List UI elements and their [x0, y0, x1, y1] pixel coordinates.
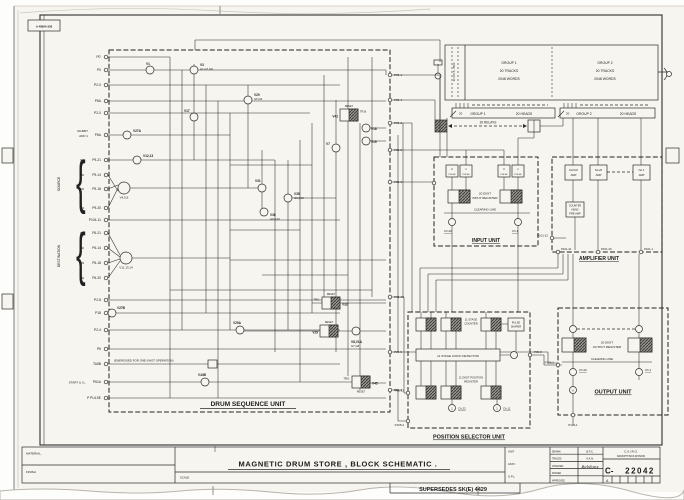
counter-box-cell [491, 318, 501, 331]
output-top-left-circle [570, 326, 577, 333]
selector-right-terminal-label: P05-8 [534, 350, 542, 354]
terminal-label: P6-18 [92, 261, 101, 265]
oneshot-box [208, 360, 217, 368]
ff-box-cell [361, 376, 370, 388]
org-line1: C.S.I.R.O. [624, 450, 638, 454]
terminal-circle [388, 180, 392, 184]
oneshot-note: (ENERGISED FOR ONE-SHOT OPERATION) [114, 359, 174, 363]
terminal-circle [104, 55, 108, 59]
schematic-sheet: A 4898A 936 30 R.P.S. 7860 GROUP 1 20 TR… [0, 0, 684, 500]
dsu-title: DRUM SEQUENCE UNIT [211, 401, 286, 408]
terminal-circle [104, 68, 108, 72]
m-tag: M2 [80, 246, 84, 250]
valve-label: V27B [117, 306, 126, 310]
input-register-label-2: INPUT REGISTER [472, 196, 498, 200]
valve-node [123, 131, 131, 139]
destination-label: DESTINATION [57, 244, 61, 267]
terminal-circle [104, 206, 108, 210]
terminal-label: P101-21 [561, 247, 572, 251]
titleblock-row-value: B.F.C. [586, 450, 594, 454]
terminal-circle [388, 295, 392, 299]
m-tag: M1 [80, 158, 84, 162]
terminal-circle [104, 231, 108, 235]
terminal-label: P9-20 [92, 206, 101, 210]
terminal-circle [104, 158, 108, 162]
inhibit-label-1: INHIBIT [77, 129, 88, 133]
terminal-label: P0' [96, 55, 101, 59]
coinc-detector-label: 11 STAGE COINC DETECTOR [437, 354, 480, 358]
terminal-circle [104, 99, 108, 103]
valve-node [201, 378, 209, 386]
reset-label: RESET [327, 293, 336, 296]
valve-label: V33 [342, 303, 348, 307]
input-register-right-cell [511, 190, 522, 203]
terminal-label: P6-21 [92, 231, 101, 235]
pulse-box-word: PULSE [462, 174, 470, 176]
heads1-group: GROUP 1 [470, 112, 485, 116]
ff-box-cell [349, 109, 358, 121]
amp-box [565, 165, 582, 180]
titleblock-row-label: TRACED [552, 458, 562, 461]
terminal-label: P104-11 [89, 218, 101, 222]
valve-sub: G3,G10 [294, 196, 304, 200]
m-tag: M4 [80, 206, 84, 210]
output-amp-letter: A [572, 388, 574, 392]
terminal-label: P2-8 [94, 298, 101, 302]
terminal-circle [104, 298, 108, 302]
valve-node [362, 137, 370, 145]
amp-box-line: No.20 [595, 168, 603, 172]
terminal-label: P2-0 [94, 83, 101, 87]
input-register-label-1: 20 DIGIT [479, 192, 491, 196]
terminal-label: P9-18 [92, 187, 101, 191]
binder-tab [2, 148, 13, 163]
finish-label: FINISH [26, 470, 36, 474]
terminal-label: P101-20 [601, 247, 612, 251]
selector-posreg-label-1: 11 DIGIT POSITION [459, 376, 483, 380]
terminal-label: P PULSE [87, 396, 102, 400]
titleblock-row-label: APPROVED [552, 479, 565, 482]
valve-label: V31 [255, 179, 261, 183]
m-tag: M4 [80, 276, 84, 280]
valve-node [352, 327, 360, 335]
valve-node [133, 156, 141, 164]
terminal-circle [104, 173, 108, 177]
input-clearing-label: CLEARING LINE [474, 208, 496, 212]
terminal-circle [639, 250, 643, 254]
valve-label: V17 [184, 109, 190, 113]
valve-node [258, 184, 266, 192]
posreg-box-cell [491, 386, 501, 399]
paper [14, 6, 684, 492]
output-bottom-terminal-label: P105-1 [568, 423, 578, 427]
output-ch1-circle [636, 369, 643, 376]
ff-box-cell [329, 325, 338, 337]
terminal-label: P0 [97, 68, 101, 72]
valve-label: V45 [372, 382, 378, 386]
valve-sub: V11,13,14 [119, 266, 133, 270]
valve-label: V27A [133, 129, 142, 133]
valve-label: V12,13 [143, 154, 153, 158]
terminal-circle [596, 250, 600, 254]
amp-preamp-line1: COUNTER [569, 205, 582, 208]
output-register-label-2: OUTPUT REGISTER [593, 345, 622, 349]
output-register-left-cell [574, 338, 586, 352]
terminal-label: P101-1 [644, 247, 653, 251]
valve-sub: G1,G7,G8 [200, 67, 213, 71]
scale-label: SCALE [180, 476, 189, 480]
m-tag: M3 [80, 187, 84, 191]
terminal-label: P05-5 [394, 350, 402, 354]
terminal-label: P05-10 [394, 295, 404, 299]
output-register-label-1: 20 DIGIT [601, 341, 613, 345]
valve-node [146, 66, 154, 74]
selector-counter-label-1: 11 STAGE [465, 318, 478, 322]
drum-right-pulley [667, 72, 672, 77]
output-ch20-label: Ch.20 [579, 368, 587, 372]
amp-box-line: CLOCK [569, 168, 578, 172]
selector-ch11-label: Ch.11 [503, 407, 511, 411]
input-left-terminal [432, 181, 436, 185]
m-tag: M3 [80, 261, 84, 265]
valve-label: V1 [146, 62, 150, 66]
terminal-circle [104, 187, 108, 191]
output-clearing-label: CLEARING LINE [591, 357, 613, 361]
terminal-label: P05-2 [394, 121, 402, 125]
valve-sub: G5,G6 [254, 97, 263, 101]
counter-box-cell [426, 318, 436, 331]
m-tag: M2 [80, 173, 84, 177]
terminal-label: P6A [95, 99, 102, 103]
valve-label: V29 [312, 331, 318, 335]
assy-label: ASSY. [508, 462, 516, 466]
selector-ch22-label: Ch.22 [458, 407, 466, 411]
terminal-circle [104, 246, 108, 250]
terminal-circle [388, 98, 392, 102]
amp-box-line: AMP [596, 173, 602, 177]
terminal-circle [556, 250, 560, 254]
terminal-circle [104, 396, 108, 400]
valve-node [190, 113, 198, 121]
valve-sub: V4,5,6 [120, 196, 129, 200]
posreg-box-cell [451, 386, 461, 399]
amp-box [633, 165, 650, 180]
valve-node [190, 66, 198, 74]
valve-node [236, 326, 244, 334]
valve-sub: G9,G10 [270, 217, 280, 221]
terminal-circle [104, 380, 108, 384]
terminal-circle [104, 83, 108, 87]
drum-group1-line3: 2048 WORDS [498, 77, 520, 81]
pulse-shaper-box [508, 318, 524, 331]
terminal-circle [388, 73, 392, 77]
titleblock-row-label: CHECKED [552, 466, 564, 468]
output-left-terminal [556, 363, 560, 367]
terminal-label: P18 [95, 311, 101, 315]
terminal-circle [104, 133, 108, 137]
trig-label: TRIG. [313, 299, 320, 302]
terminal-label: P6-14 [92, 246, 101, 250]
binder-tab [2, 294, 13, 309]
heads2-count: 20 HEADS [620, 112, 637, 116]
amp-left-terminal [550, 236, 554, 240]
reset-label: RESET [325, 321, 334, 324]
terminal-label: P61A [93, 380, 102, 384]
m-tag: M1 [80, 231, 84, 235]
amp-preamp-line3: PRE-AMP [569, 213, 581, 216]
input-title: INPUT UNIT [472, 238, 500, 244]
input-ch20-label: Ch.20 [444, 229, 452, 233]
valve-node [260, 208, 268, 216]
binder-tab [666, 148, 679, 163]
terminal-circle [104, 362, 108, 366]
terminal-label: P6A [95, 133, 102, 137]
titleblock-row-label: PASSED [552, 472, 561, 475]
ff-box-cell [331, 297, 340, 309]
terminal-label: P6-20 [92, 276, 101, 280]
terminal-label: P05-1 [394, 73, 402, 77]
valve-node [108, 309, 116, 317]
terminal-circle [388, 148, 392, 152]
valve-label: V25A [233, 321, 242, 325]
unit-label: UNIT [508, 450, 515, 454]
tap2-label: 20 [566, 112, 570, 116]
terminal-circle [104, 347, 108, 351]
pulse-box-word: PULSE [448, 174, 456, 176]
amp-box-line: AMP [639, 173, 645, 177]
valve-label: V7 [326, 142, 330, 146]
counter-box-cell [451, 318, 461, 331]
heads-bar-group1 [452, 108, 555, 118]
serial-stamp-text: A 4898A 936 [36, 25, 53, 29]
valve-node [244, 96, 252, 104]
terminal-circle [104, 111, 108, 115]
output-title: OUTPUT UNIT [595, 390, 633, 396]
terminal-circle [104, 276, 108, 280]
drawing-number: 22042 [625, 467, 655, 476]
valve-node [120, 252, 132, 264]
terminal-label: P9-14 [92, 173, 101, 177]
gpl-label: G.P.L. [508, 475, 516, 479]
selector-bottom-terminal [406, 419, 410, 423]
input-ch1-circle [515, 219, 522, 226]
relay-box-left [435, 120, 447, 132]
amp-box [590, 165, 607, 180]
amp-title: AMPLIFIER UNIT [579, 256, 619, 262]
titleblock-row-label: DRAWN [552, 451, 561, 454]
valve-label: V41 [332, 115, 338, 119]
amp-box-line: No.1 [639, 168, 645, 172]
terminal-label: P2-4 [94, 328, 101, 332]
valve-node [284, 194, 292, 202]
selector-bottom-terminal-label: P105-4 [395, 423, 405, 427]
output-register-right-cell [640, 338, 652, 352]
tap1-label: 20 [459, 112, 463, 116]
checked-signature: Belshaw [580, 464, 599, 469]
material-label: MATERIAL, [26, 452, 42, 456]
source-label: SOURCE [57, 176, 61, 191]
output-ch1-label: Ch.1 [645, 368, 651, 372]
terminal-label: P9-21 [92, 158, 101, 162]
heads-bar-group2 [560, 108, 655, 118]
org-line2: RADIOPHYSICS DIVISION [617, 455, 645, 458]
heads2-group: GROUP 2 [576, 112, 591, 116]
drawing-title: MAGNETIC DRUM STORE , BLOCK SCHEMATIC . [239, 460, 438, 469]
terminal-label: P2-0 [94, 111, 101, 115]
selector-counter-label-2: COUNTER [464, 322, 477, 326]
supersedes-label: SUPERSEDES SK(E) 4429 [419, 487, 487, 493]
valve-node [118, 182, 130, 194]
posreg-box-cell [426, 386, 436, 399]
serial-stamp: A 4898A 936 [28, 20, 60, 31]
amp-left-terminal-label: P101-12 [537, 234, 548, 238]
terminal-circle [104, 218, 108, 222]
titleblock-row-value: V.A.N. [586, 457, 594, 461]
selector-right-terminal [528, 353, 532, 357]
inhibit-label-2: ADD 1 [79, 134, 88, 138]
start-label: START & I.L. [69, 381, 87, 385]
output-top-right-circle [636, 326, 643, 333]
terminal-circle [388, 350, 392, 354]
pulse-box-word: PULSE [500, 174, 508, 176]
input-ch1-label: Ch.1 [512, 229, 518, 233]
drum-spin-label: 30 R.P.S. 7860 [452, 62, 456, 81]
amp-preamp-line2: HEAD [572, 209, 579, 212]
valve-label: V18 [371, 127, 377, 131]
terminal-label: P05-3 [394, 180, 402, 184]
selector-coinc-out-circle [511, 352, 518, 359]
output-bottom-terminal [571, 413, 575, 417]
reset-label: RESET [357, 391, 366, 394]
terminal-label: P05-6 [394, 148, 402, 152]
valve-label: V44B [198, 373, 207, 377]
output-ch20-circle [570, 369, 577, 376]
trig-label: TRIG. [343, 378, 350, 381]
input-register-left-cell [459, 190, 470, 203]
pulse-shaper-line1: PULSE [512, 322, 521, 325]
relays-label: 20 RELAYS [480, 121, 497, 125]
drum-group1-line2: 20 TRACKS [500, 69, 519, 73]
reset-label: RESET [345, 105, 354, 108]
valve-sub: G7,G8 [351, 344, 360, 348]
selector-posreg-label-2: REGISTER [464, 380, 478, 384]
terminal-label: TA5B [93, 362, 102, 366]
valve-node [362, 124, 370, 132]
terminal-circle [104, 328, 108, 332]
valve-label: V19 [371, 140, 377, 144]
input-ch20-circle [449, 219, 456, 226]
drawing-number-prefix: C- [605, 467, 614, 476]
terminal-circle [388, 388, 392, 392]
terminal-circle [104, 261, 108, 265]
output-left-terminal-label: P105-2 [545, 361, 555, 365]
amp-box-line: AMP [571, 173, 577, 177]
pulse-box-word: PULSE [514, 174, 522, 176]
terminal-circle [388, 121, 392, 125]
terminal-label: P05-4 [394, 98, 402, 102]
heads1-count: 20 HEADS [516, 112, 533, 116]
terminal-circle [104, 311, 108, 315]
selector-left-terminal [406, 391, 410, 395]
trig-label: TR16 [360, 111, 367, 114]
drum-group2-line3: 2048 WORDS [594, 77, 616, 81]
pulse-shaper-line2: SHAPER [511, 326, 521, 329]
drum-group2-line1: GROUP 2 [597, 61, 612, 65]
valve-node [332, 144, 340, 152]
drum-group1-line1: GROUP 1 [501, 61, 516, 65]
terminal-label: P6 [97, 347, 101, 351]
selector-left-terminal-label: P05-12 [395, 389, 405, 393]
drum-group2-line2: 20 TRACKS [596, 69, 615, 73]
selector-title: POSITION SELECTOR UNIT [433, 435, 506, 441]
